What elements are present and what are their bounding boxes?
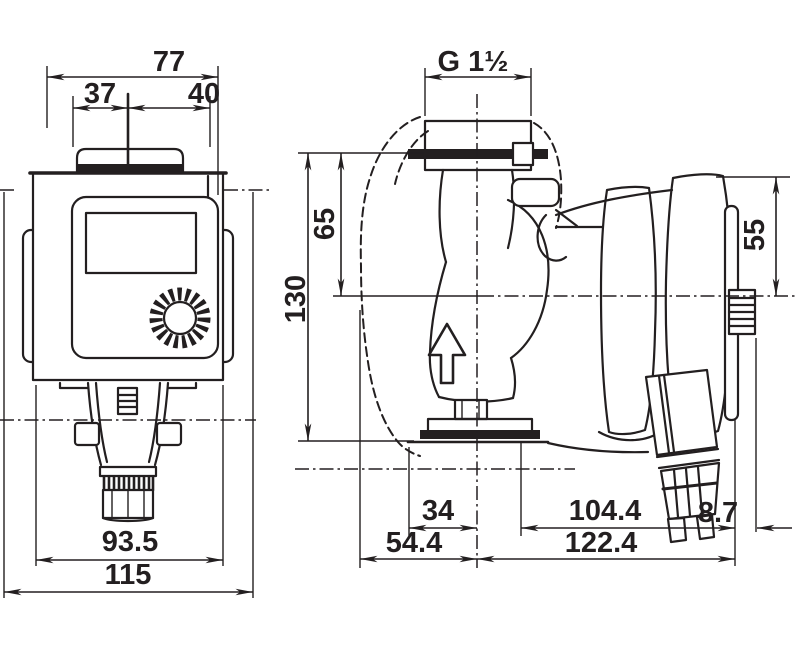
dim-label-width-left: 37 — [84, 78, 116, 110]
right-lug — [157, 423, 181, 445]
dim-label-flange-to-axis: 65 — [309, 208, 341, 240]
flow-direction-arrow — [429, 324, 465, 383]
dim-label-axis-to-motor-end: 104.4 — [569, 495, 642, 527]
technical-drawing: 77 37 40 G 1½ 65 130 55 34 104.4 8.7 54.… — [0, 0, 800, 650]
knob-center — [164, 302, 196, 334]
dim-label-body-width: 93.5 — [102, 526, 158, 558]
neck-shoulder-right — [168, 383, 196, 388]
display — [86, 213, 196, 273]
dim-label-flange-to-flange: 130 — [280, 275, 312, 323]
dim-label-axis-to-front-plate: 34 — [422, 495, 454, 527]
insulation-shell — [361, 117, 420, 456]
top-flange — [408, 121, 548, 170]
dim-label-total-depth: 122.4 — [565, 527, 638, 559]
neck-shoulder-left — [60, 383, 88, 388]
dim-label-width-right: 40 — [188, 78, 220, 110]
dim-label-front-depth: 54.4 — [386, 527, 442, 559]
dim-label-motor-end-extra: 8.7 — [698, 497, 738, 529]
dim-label-total-width: 77 — [153, 46, 185, 78]
front-view — [0, 94, 272, 521]
dim-label-overall-width: 115 — [105, 559, 152, 591]
left-lug — [75, 423, 99, 445]
motor-stage-1 — [601, 187, 656, 434]
dim-label-axis-to-motor-top: 55 — [739, 219, 771, 251]
union-nut — [100, 467, 156, 521]
dim-label-port-thread: G 1½ — [438, 46, 509, 78]
front-top-port-band — [77, 164, 183, 172]
